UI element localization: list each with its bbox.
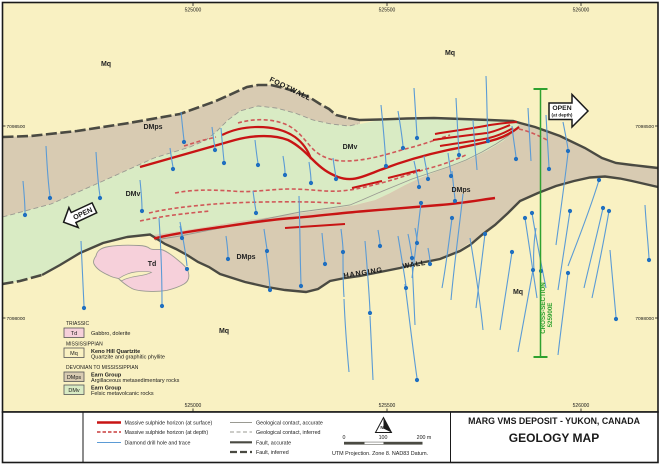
svg-text:7098000: 7098000 — [635, 316, 654, 322]
svg-text:Mq: Mq — [445, 50, 455, 57]
svg-text:DMv: DMv — [343, 144, 358, 151]
svg-text:DMps: DMps — [451, 187, 470, 194]
svg-text:Fault, inferred: Fault, inferred — [256, 450, 289, 456]
svg-text:GEOLOGY MAP: GEOLOGY MAP — [509, 431, 599, 445]
svg-text:(at depth): (at depth) — [552, 113, 573, 118]
svg-text:200 m: 200 m — [417, 435, 432, 441]
svg-text:Td: Td — [71, 331, 77, 337]
svg-text:Td: Td — [148, 261, 157, 268]
svg-text:UTM Projection. Zone 8. NAD83: UTM Projection. Zone 8. NAD83 Datum. — [332, 451, 428, 457]
svg-text:100: 100 — [379, 435, 388, 441]
svg-text:DMv: DMv — [68, 388, 80, 394]
svg-text:Diamond drill hole and trace: Diamond drill hole and trace — [125, 441, 191, 447]
svg-text:7098500: 7098500 — [7, 124, 26, 130]
svg-text:Fault, accurate: Fault, accurate — [256, 441, 291, 447]
svg-text:0: 0 — [343, 435, 346, 441]
svg-text:526000: 526000 — [573, 8, 590, 14]
svg-text:7098000: 7098000 — [7, 316, 26, 322]
svg-text:DMps: DMps — [67, 375, 82, 381]
svg-text:N: N — [380, 425, 383, 430]
svg-text:DMps: DMps — [143, 124, 162, 131]
svg-text:MISSISSIPPIAN: MISSISSIPPIAN — [66, 342, 103, 348]
svg-text:Gabbro, dolerite: Gabbro, dolerite — [91, 331, 130, 337]
svg-text:525000: 525000 — [185, 8, 202, 14]
svg-text:Argillaceous metasedimentary r: Argillaceous metasedimentary rocks — [91, 378, 180, 384]
svg-text:Massive sulphide horizon (at d: Massive sulphide horizon (at depth) — [125, 430, 209, 436]
svg-text:525500: 525500 — [379, 8, 396, 14]
svg-text:526000: 526000 — [573, 403, 590, 409]
svg-text:Quartzite and graphitic phylli: Quartzite and graphitic phyllite — [91, 355, 165, 361]
svg-text:Felsic metavolcanic rocks: Felsic metavolcanic rocks — [91, 391, 154, 397]
svg-text:7098500: 7098500 — [635, 124, 654, 130]
svg-text:525900E: 525900E — [547, 303, 554, 328]
svg-text:Mq: Mq — [70, 351, 78, 357]
svg-text:525500: 525500 — [379, 403, 396, 409]
svg-text:Mq: Mq — [219, 328, 229, 335]
svg-text:525000: 525000 — [185, 403, 202, 409]
svg-text:TRIASSIC: TRIASSIC — [66, 321, 89, 327]
svg-text:MARG VMS DEPOSIT - YUKON, CANA: MARG VMS DEPOSIT - YUKON, CANADA — [468, 416, 641, 426]
svg-text:DMv: DMv — [126, 191, 141, 198]
svg-text:Mq: Mq — [101, 61, 111, 68]
svg-text:CROSS-SECTION: CROSS-SECTION — [540, 282, 547, 334]
svg-text:DEVONIAN TO MISSISSIPPIAN: DEVONIAN TO MISSISSIPPIAN — [66, 365, 139, 371]
svg-text:Geological contact, accurate: Geological contact, accurate — [256, 421, 323, 427]
svg-text:OPEN: OPEN — [552, 105, 571, 112]
svg-text:Geological contact, inferred: Geological contact, inferred — [256, 430, 321, 436]
svg-text:DMps: DMps — [236, 254, 255, 261]
svg-text:Mq: Mq — [513, 289, 523, 296]
svg-text:Massive sulphide horizon (at s: Massive sulphide horizon (at surface) — [125, 421, 213, 427]
